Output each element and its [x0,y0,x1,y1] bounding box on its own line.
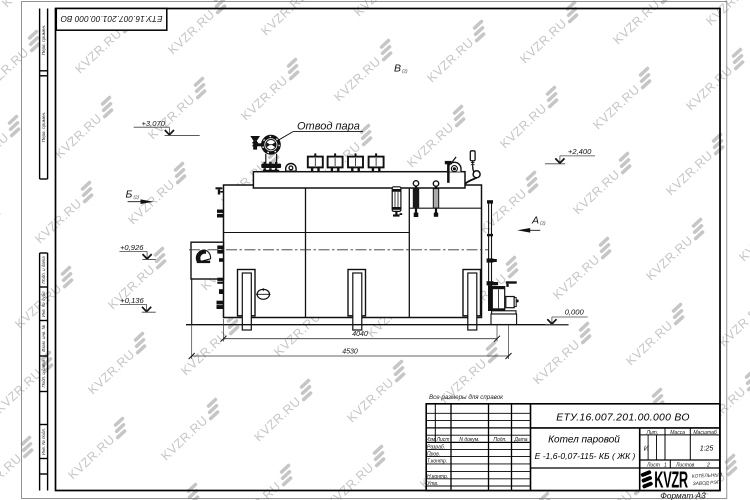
svg-text:KVZR.RU: KVZR.RU [158,413,210,463]
svg-text:Е -1,6-0,07-115- КБ ( ЖК ): Е -1,6-0,07-115- КБ ( ЖК ) [535,451,636,461]
svg-text:KVZR.RU: KVZR.RU [165,7,217,57]
svg-text:Т.контр.: Т.контр. [427,459,447,465]
svg-text:KVZR.RU: KVZR.RU [610,0,662,47]
svg-text:2: 2 [706,462,710,468]
svg-text:Формат А3: Формат А3 [660,490,706,500]
svg-text:Инв. № подл.: Инв. № подл. [41,428,46,455]
svg-text:N докум.: N докум. [459,437,479,443]
svg-text:KVZR.RU: KVZR.RU [32,196,84,246]
svg-text:Все размеры для справок: Все размеры для справок [429,394,504,401]
svg-text:Н.контр.: Н.контр. [427,474,448,480]
svg-text:KVZR.RU: KVZR.RU [517,16,569,66]
svg-text:+3,070: +3,070 [142,119,166,128]
svg-text:Взам. инв. №: Взам. инв. № [41,324,46,351]
svg-text:KVZR.RU: KVZR.RU [52,111,104,161]
svg-text:KVZR.RU: KVZR.RU [85,347,137,397]
svg-text:KVZR.RU: KVZR.RU [590,82,642,132]
svg-text:KVZR.RU: KVZR.RU [477,186,529,236]
svg-text:KVZR.RU: KVZR.RU [65,432,117,482]
svg-text:KVZR.RU: KVZR.RU [231,479,283,500]
svg-text:А: А [531,215,539,227]
svg-text:ЕТУ.16.007.201.00.000 ВО: ЕТУ.16.007.201.00.000 ВО [60,14,162,23]
svg-text:1:25: 1:25 [700,446,714,453]
svg-text:4530: 4530 [342,348,358,355]
svg-text:Дата: Дата [513,437,527,443]
svg-text:KVZR.RU: KVZR.RU [251,394,303,444]
svg-text:KVZR.RU: KVZR.RU [716,299,750,349]
svg-text:Утв.: Утв. [427,481,438,487]
svg-text:KVZR.RU: KVZR.RU [12,281,64,331]
svg-text:Котел паровой: Котел паровой [548,435,620,446]
svg-text:(2): (2) [540,221,546,226]
svg-text:KVZR.RU: KVZR.RU [550,252,602,302]
svg-text:KVZR.RU: KVZR.RU [331,54,383,104]
svg-text:KVZR.RU: KVZR.RU [663,148,715,198]
svg-text:KVZR.RU: KVZR.RU [530,337,582,387]
svg-text:Разраб.: Разраб. [427,444,445,450]
svg-text:Б: Б [126,189,133,201]
svg-text:KVZR.RU: KVZR.RU [0,366,45,416]
svg-text:Подп. и дата: Подп. и дата [41,256,46,284]
svg-text:Пров.: Пров. [427,451,440,457]
svg-text:KVZR.RU: KVZR.RU [145,92,197,142]
svg-text:+2,400: +2,400 [568,147,592,156]
svg-text:KVZR.RU: KVZR.RU [736,214,750,264]
svg-text:Масса: Масса [670,430,685,436]
svg-text:KVZR.RU: KVZR.RU [258,0,310,38]
svg-text:Изм: Изм [426,437,436,443]
svg-text:KVZR.RU: KVZR.RU [178,328,230,378]
svg-text:Лист: Лист [436,437,450,443]
svg-text:KVZR.RU: KVZR.RU [238,73,290,123]
svg-text:Перв. примен.: Перв. примен. [41,112,46,143]
svg-text:Подп.: Подп. [493,437,506,443]
svg-text:4040: 4040 [352,331,368,338]
svg-text:KVZR: KVZR [654,466,688,492]
svg-text:(2): (2) [402,69,408,74]
svg-text:Перв. примен.: Перв. примен. [41,25,46,56]
svg-text:KVZR.RU: KVZR.RU [497,101,549,151]
svg-text:(2): (2) [134,195,140,200]
svg-text:Инв. № дубл.: Инв. № дубл. [41,290,46,317]
svg-text:KVZR.RU: KVZR.RU [324,460,376,500]
svg-text:Лит.: Лит. [645,430,658,436]
svg-text:В: В [394,63,401,75]
svg-text:KVZR.RU: KVZR.RU [0,130,12,180]
svg-text:KVZR.RU: KVZR.RU [351,0,403,19]
svg-text:KVZR.RU: KVZR.RU [643,233,695,283]
svg-text:KVZR.RU: KVZR.RU [72,26,124,76]
svg-text:KVZR.RU: KVZR.RU [623,318,675,368]
svg-text:KVZR.RU: KVZR.RU [570,167,622,217]
svg-text:KVZR.RU: KVZR.RU [0,45,32,95]
svg-text:KVZR.RU: KVZR.RU [683,63,735,113]
svg-text:KVZR.RU: KVZR.RU [125,177,177,227]
svg-text:0,000: 0,000 [565,308,585,317]
svg-text:Масштаб: Масштаб [693,430,717,436]
svg-text:ЕТУ.16.007.201.00.000 ВО: ЕТУ.16.007.201.00.000 ВО [556,412,690,423]
svg-text:KVZR.RU: KVZR.RU [0,451,25,500]
svg-text:Отвод пара: Отвод пара [297,121,360,133]
svg-text:Подп. и дата: Подп. и дата [41,360,46,388]
svg-text:+0,926: +0,926 [120,243,144,252]
svg-text:+0,136: +0,136 [120,296,144,305]
svg-text:KVZR.RU: KVZR.RU [344,375,396,425]
svg-text:KVZR.RU: KVZR.RU [424,35,476,85]
